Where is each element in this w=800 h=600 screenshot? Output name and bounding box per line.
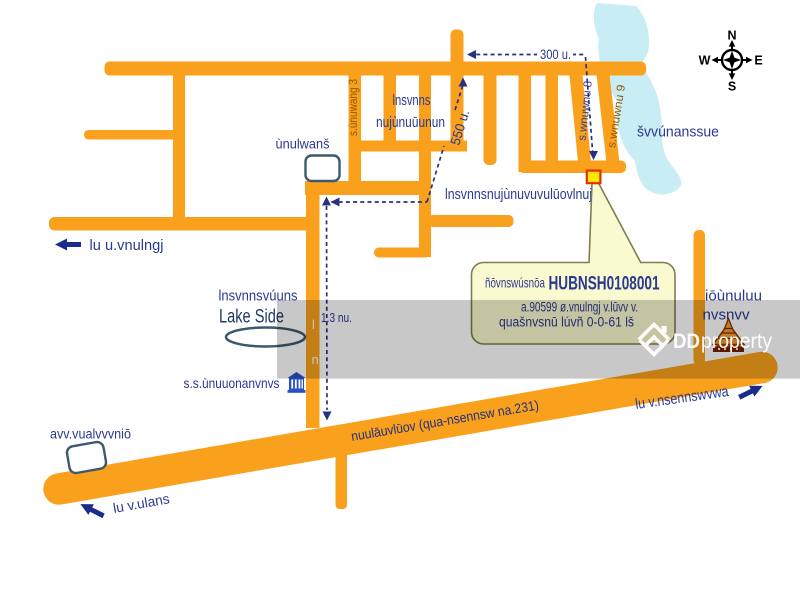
svg-text:lnsvnns: lnsvnns (393, 92, 431, 109)
svg-text:s.ùnuwang 3: s.ùnuwang 3 (346, 79, 360, 136)
svg-text:nujùnuūunun: nujùnuūunun (376, 114, 445, 131)
svg-text:ñōvnswúsnōa: ñōvnswúsnōa (485, 275, 545, 291)
svg-text:property: property (701, 330, 772, 353)
svg-text:HUBNSH0108001: HUBNSH0108001 (549, 274, 660, 295)
svg-text:ùnulwanš: ùnulwanš (276, 136, 330, 152)
svg-text:lu u.vnulngj: lu u.vnulngj (90, 237, 164, 254)
svg-text:Lake Side: Lake Side (219, 307, 284, 328)
svg-text:W: W (699, 53, 711, 67)
svg-text:E: E (754, 53, 762, 67)
svg-text:DD: DD (673, 330, 700, 353)
svg-text:lnsvnnsnujùnuvuvulūovlnuj: lnsvnnsnujùnuvuvulūovlnuj (445, 186, 592, 203)
svg-text:švvúnanssue: švvúnanssue (637, 124, 719, 141)
svg-text:avv.vualvvvniō: avv.vualvvvniō (50, 427, 131, 442)
svg-text:S: S (728, 80, 736, 94)
svg-text:s.s.ùnuuonanvnvs: s.s.ùnuuonanvnvs (184, 375, 280, 391)
svg-text:N: N (727, 29, 736, 43)
svg-text:300 u.: 300 u. (540, 47, 571, 62)
